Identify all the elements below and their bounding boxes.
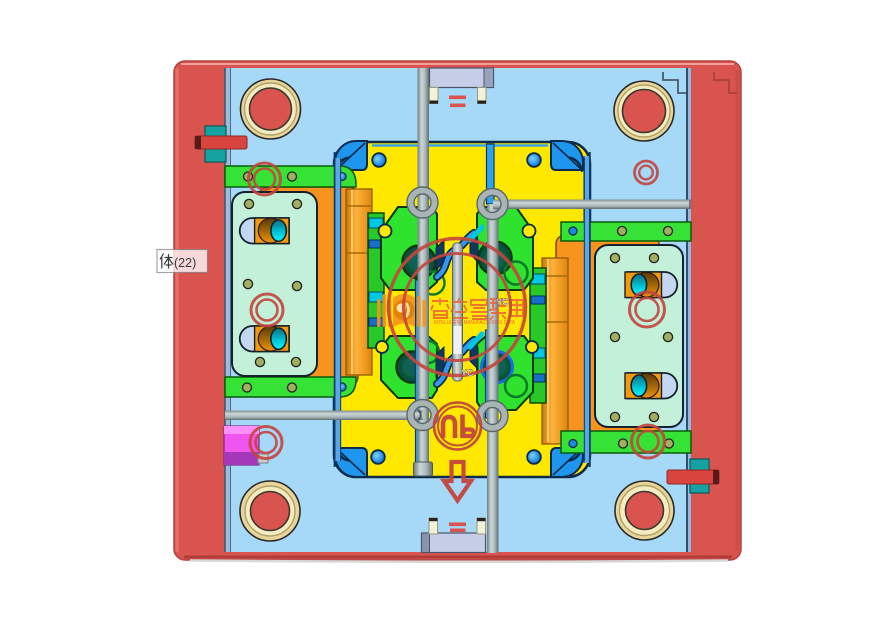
svg-text:INTELLIGENT MANUFACTURING DATA: INTELLIGENT MANUFACTURING DATA [434, 320, 515, 326]
svg-text:YC: YC [461, 368, 474, 378]
svg-text:(22): (22) [174, 256, 196, 270]
svg-text:YC: YC [496, 297, 509, 307]
